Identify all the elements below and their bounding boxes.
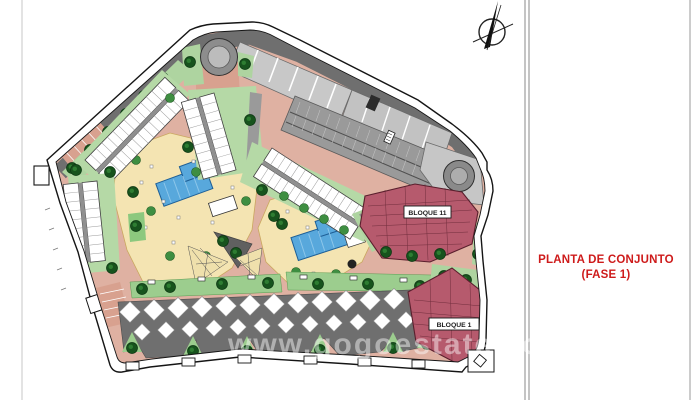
site-plan-drawing: BLOQUE 11 BLOQUE 1 www.gogoestates.com P… — [0, 0, 700, 400]
survey-ticks — [45, 208, 66, 290]
title-line-2: (FASE 1) — [582, 269, 631, 281]
title-block: PLANTA DE CONJUNTO (FASE 1) — [538, 254, 674, 281]
title-line-1: PLANTA DE CONJUNTO — [538, 254, 674, 266]
plan-canvas: BLOQUE 11 BLOQUE 1 www.gogoestates.com P… — [0, 0, 700, 400]
bloque-11-label: BLOQUE 11 — [404, 206, 451, 218]
watermark-text: www.gogoestates.com — [227, 328, 590, 361]
spa-circle — [348, 260, 357, 269]
svg-text:BLOQUE 11: BLOQUE 11 — [408, 210, 446, 217]
north-arrow-icon — [473, 1, 513, 50]
